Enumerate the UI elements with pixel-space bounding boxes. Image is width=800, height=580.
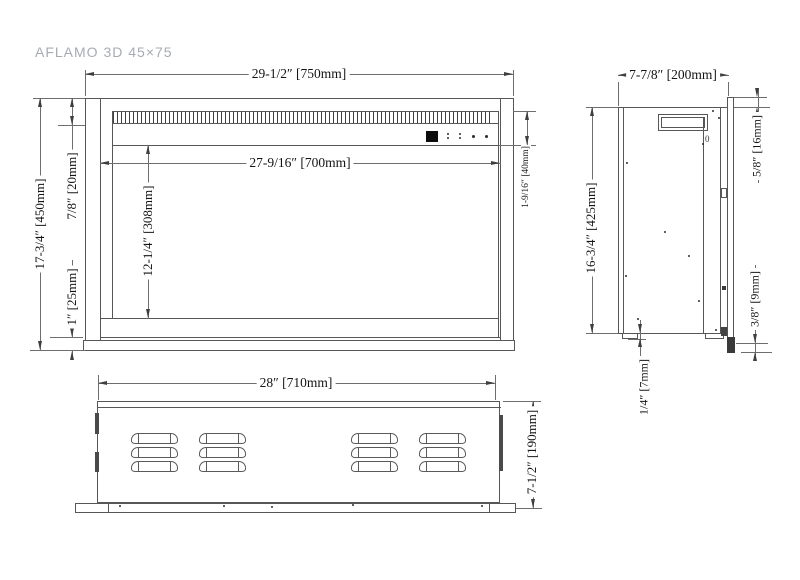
dimension-arrow xyxy=(70,116,74,125)
dim-front-opening-height: 12-1/4″ [308mm] xyxy=(140,183,156,280)
bottom-left-bracket xyxy=(95,452,99,472)
dimension-arrow xyxy=(98,381,107,385)
screw-dot xyxy=(271,506,273,508)
dimension-arrow xyxy=(70,328,74,337)
dimension-arrow xyxy=(638,338,642,347)
dim-side-foot: 1/4″ [7mm] xyxy=(637,356,652,418)
dimension-line xyxy=(30,350,85,351)
dimension-line xyxy=(50,337,83,338)
bottom-left-bracket xyxy=(95,413,99,434)
dimension-line xyxy=(734,97,767,98)
dimension-arrow xyxy=(70,351,74,360)
vent-louver xyxy=(351,461,398,472)
dim-side-height: 16-3/4″ [425mm] xyxy=(583,180,599,277)
drawing-line xyxy=(112,145,499,146)
dimension-arrow xyxy=(38,98,42,107)
dim-bottom-width: 28″ [710mm] xyxy=(257,375,336,391)
screw-dot xyxy=(626,162,628,164)
dim-front-opening-width: 27-9/16″ [700mm] xyxy=(246,155,353,171)
dim-front-bottom-frame: 1″ [25mm] xyxy=(64,265,80,328)
drawing-line xyxy=(97,407,501,408)
screw-dot xyxy=(637,318,639,320)
dimension-arrow xyxy=(590,324,594,333)
control-button-dot xyxy=(485,135,488,138)
side-zero-marking: 0 xyxy=(705,134,710,144)
dim-side-depth: 7-7/8″ [200mm] xyxy=(626,67,720,83)
dimension-line xyxy=(503,401,541,402)
dim-bottom-depth: 7-1/2″ [190mm] xyxy=(524,407,540,498)
screw-dot xyxy=(664,231,666,233)
drawing-line xyxy=(703,117,704,333)
screw-dot xyxy=(712,110,714,112)
dimension-arrow xyxy=(491,161,500,165)
control-button-dot xyxy=(459,137,461,139)
vent-louver xyxy=(131,433,178,444)
drawing-line xyxy=(85,98,514,99)
dim-side-flange-top: 5/8″ [16mm] xyxy=(750,112,765,180)
drawing-line xyxy=(85,98,86,341)
drawing-line xyxy=(113,123,499,124)
dim-side-flange-bottom: 3/8″ [9mm] xyxy=(748,268,763,330)
side-hinge-detail xyxy=(721,188,727,198)
control-button-dot xyxy=(472,135,475,138)
vent-louver xyxy=(131,461,178,472)
dimension-arrow xyxy=(504,72,513,76)
screw-dot xyxy=(119,505,121,507)
vent-louver xyxy=(419,447,466,458)
vent-louver xyxy=(199,433,246,444)
dimension-line xyxy=(98,375,99,400)
control-button-dot xyxy=(459,133,461,135)
dimension-arrow xyxy=(38,341,42,350)
bottom-flange xyxy=(75,503,516,513)
drawing-line xyxy=(112,111,113,319)
dim-front-vent-band: 1-9/16″ [40mm] xyxy=(521,145,531,209)
screw-dot xyxy=(702,143,704,145)
drawing-line xyxy=(100,318,499,319)
dim-front-top-frame: 7/8″ [20mm] xyxy=(64,149,80,222)
dimension-line xyxy=(516,508,542,509)
vent-louver xyxy=(199,447,246,458)
screw-dot xyxy=(223,505,225,507)
front-vent-strip xyxy=(113,112,490,123)
dimension-arrow xyxy=(638,324,642,333)
dimension-arrow xyxy=(753,334,757,343)
drawing-line xyxy=(720,107,721,333)
vent-louver xyxy=(419,461,466,472)
dimension-line xyxy=(602,333,618,334)
dimension-arrow xyxy=(146,145,150,154)
vent-louver xyxy=(419,433,466,444)
drawing-line xyxy=(100,98,101,341)
dimension-arrow xyxy=(590,107,594,116)
side-bracket-detail xyxy=(721,327,727,336)
drawing-line xyxy=(623,107,624,333)
screw-dot xyxy=(352,504,354,506)
dimension-line xyxy=(495,375,496,400)
screw-dot xyxy=(625,275,627,277)
control-display-icon xyxy=(426,131,438,142)
dimension-line xyxy=(741,352,772,353)
drawing-line xyxy=(108,503,109,513)
dimension-line xyxy=(728,82,729,96)
dimension-arrow xyxy=(100,161,109,165)
dimension-line xyxy=(58,125,85,126)
front-bottom-band xyxy=(83,340,515,351)
screw-dot xyxy=(698,300,700,302)
drawing-line xyxy=(500,98,501,341)
dimension-arrow xyxy=(486,381,495,385)
dimension-arrow xyxy=(525,136,529,145)
dimension-arrow xyxy=(755,88,759,97)
drawing-line xyxy=(100,337,500,338)
vent-louver xyxy=(131,447,178,458)
dimension-arrow xyxy=(531,499,535,508)
vent-louver xyxy=(199,461,246,472)
control-button-dot xyxy=(447,133,449,135)
bottom-right-bracket xyxy=(499,415,503,471)
screw-dot xyxy=(688,255,690,257)
screw-dot xyxy=(481,505,483,507)
dim-front-overall-width: 29-1/2″ [750mm] xyxy=(249,66,350,82)
dimension-arrow xyxy=(70,98,74,107)
dimension-arrow xyxy=(146,309,150,318)
drawing-line xyxy=(489,503,490,513)
vent-louver xyxy=(351,447,398,458)
dimension-arrow xyxy=(525,111,529,120)
dimension-arrow xyxy=(85,72,94,76)
drawing-line xyxy=(113,111,499,112)
dimension-line xyxy=(513,70,514,96)
page-title: AFLAMO 3D 45×75 xyxy=(35,44,173,60)
side-flange-foot xyxy=(727,337,735,353)
dimension-line xyxy=(736,343,768,344)
dimension-arrow xyxy=(719,73,728,77)
dimension-line xyxy=(618,82,619,106)
side-screw-detail xyxy=(722,286,726,290)
side-body xyxy=(618,107,728,334)
vent-louver xyxy=(351,433,398,444)
drawing-line xyxy=(513,98,514,341)
side-louver-inner xyxy=(661,117,705,128)
dimension-arrow xyxy=(753,352,757,361)
dim-front-overall-height: 17-3/4″ [450mm] xyxy=(32,176,48,273)
screw-dot xyxy=(718,117,720,119)
control-button-dot xyxy=(447,137,449,139)
spec-sheet-drawing: AFLAMO 3D 45×75 0 29-1/2″ [750mm] 27-9/1… xyxy=(0,0,800,580)
screw-dot xyxy=(715,329,717,331)
side-front-flange xyxy=(727,97,734,352)
dimension-line xyxy=(734,107,770,108)
